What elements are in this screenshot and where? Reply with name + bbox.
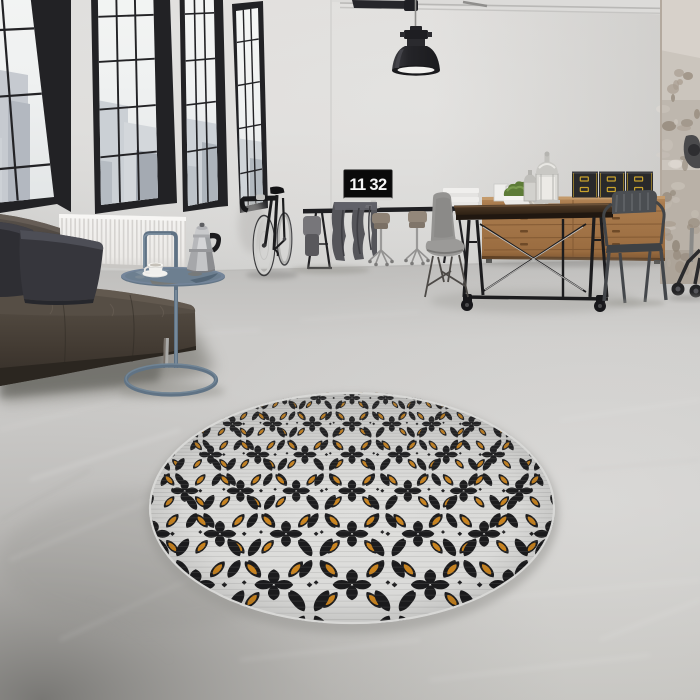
svg-text:11: 11	[349, 176, 366, 194]
svg-text:32: 32	[369, 176, 387, 194]
